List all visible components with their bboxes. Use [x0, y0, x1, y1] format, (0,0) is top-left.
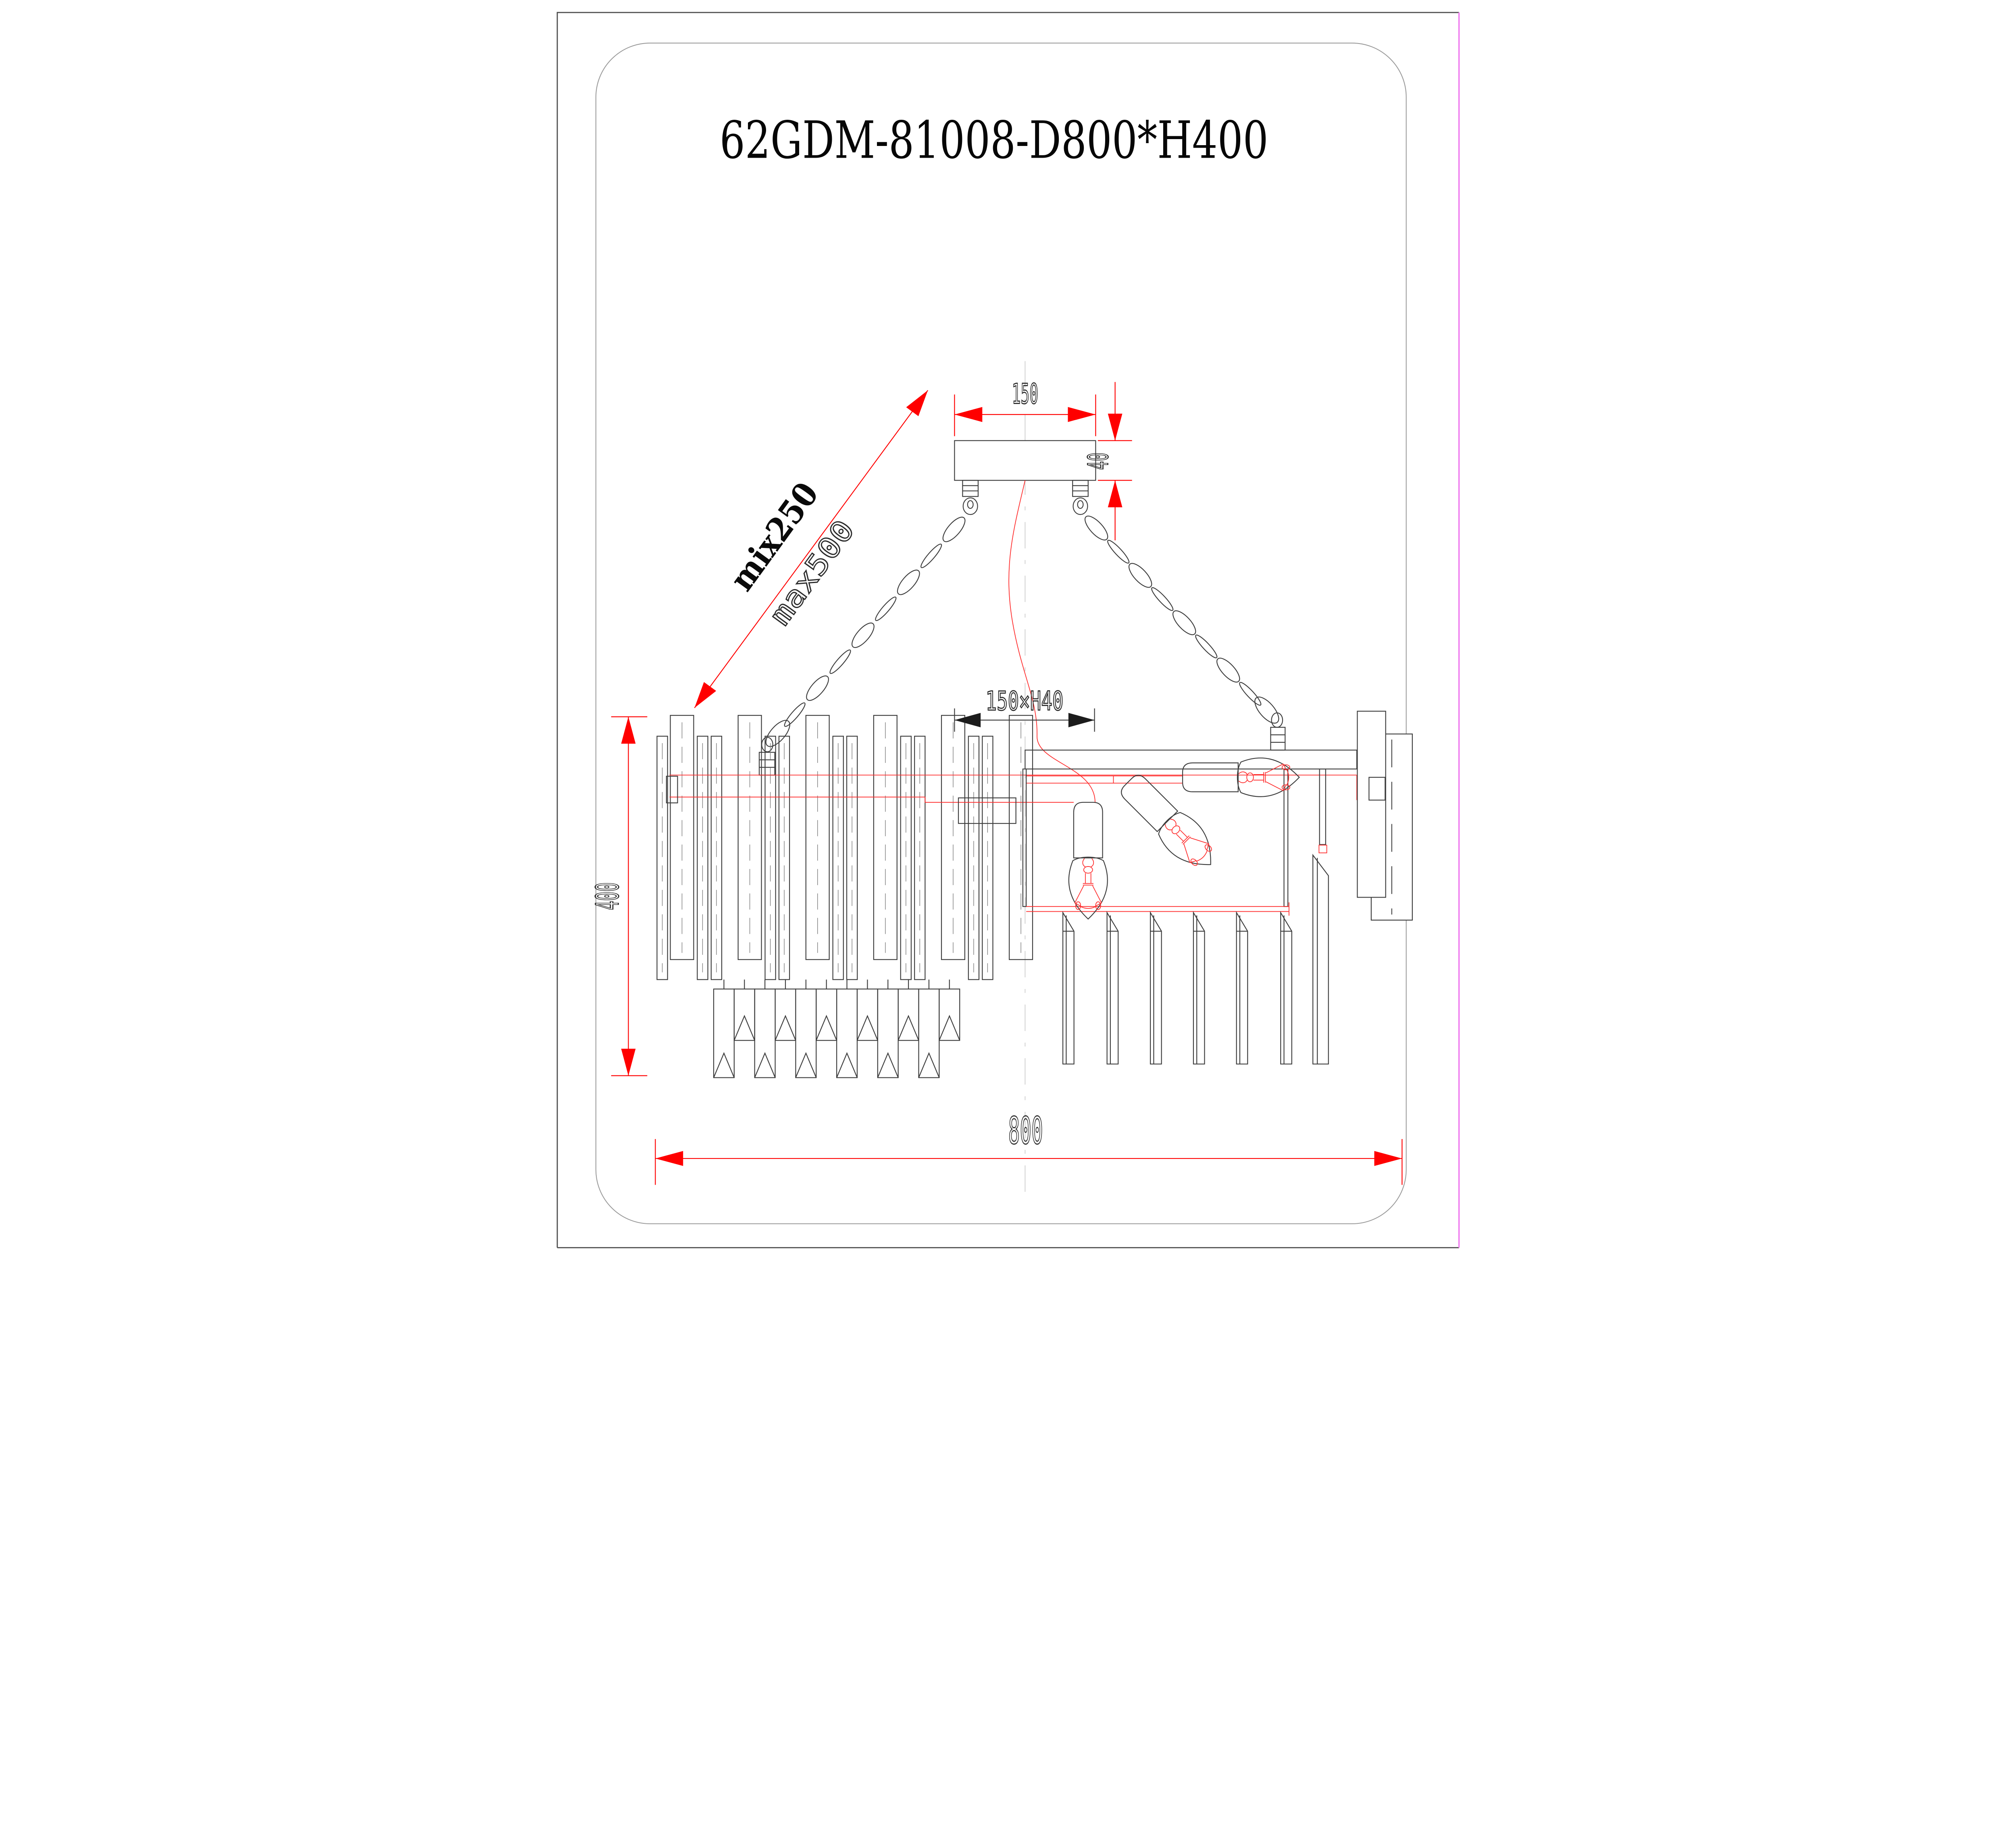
dim-text-socket: 150×H40 — [986, 686, 1064, 717]
end-plates — [1357, 711, 1412, 920]
dim-text-40: 40 — [1083, 452, 1115, 470]
page-sheet — [557, 12, 1459, 1248]
technical-drawing: 62GDM-81008-D800*H400 — [0, 0, 2016, 1260]
drawing-page: 62GDM-81008-D800*H400 — [0, 0, 2016, 1260]
drawing-title: 62GDM-81008-D800*H400 — [720, 110, 1268, 170]
dim-text-400: 400 — [590, 882, 626, 910]
dim-text-800: 800 — [1008, 1109, 1043, 1152]
dim-text-150: 150 — [1012, 378, 1038, 410]
